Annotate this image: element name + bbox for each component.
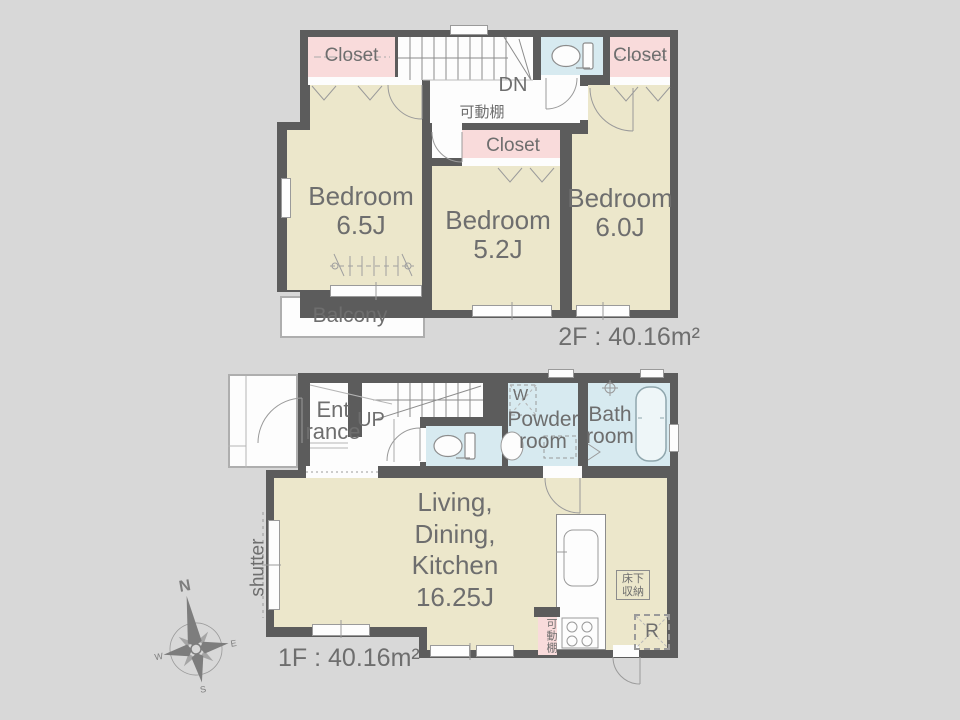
bedroom1-label: Bedroom 6.5J bbox=[296, 182, 426, 240]
washer-label: W bbox=[513, 387, 535, 405]
bath-line2: room bbox=[578, 426, 642, 448]
floor-storage-label: 床下 収納 bbox=[616, 573, 650, 598]
toilet-door-gap bbox=[418, 428, 426, 462]
compass-minor-points bbox=[179, 632, 214, 667]
compass-s-label: S bbox=[199, 684, 207, 695]
bedroom1-door-gap bbox=[390, 77, 422, 85]
closet-mid-door bbox=[462, 158, 560, 166]
shelf-2f-label: 可動棚 bbox=[427, 105, 537, 122]
window bbox=[281, 178, 291, 218]
floor1-area-label: 1F : 40.16m² bbox=[278, 644, 488, 672]
kitchen-counter bbox=[556, 514, 606, 650]
bath-room-label: Bath room bbox=[578, 404, 642, 448]
toilet-room-1f bbox=[426, 426, 502, 466]
bedroom2-name: Bedroom bbox=[432, 206, 564, 235]
storage-line2: 収納 bbox=[616, 586, 650, 599]
bedroom2-size: 5.2J bbox=[432, 235, 564, 264]
compass-n-label: N bbox=[178, 577, 192, 596]
stairs-up-label: UP bbox=[353, 409, 389, 431]
bedroom3-name: Bedroom bbox=[560, 184, 680, 213]
ldk-line1: Living, bbox=[380, 487, 530, 519]
ldk-line3: Kitchen bbox=[380, 550, 530, 582]
bedroom3-size: 6.0J bbox=[560, 213, 680, 242]
window bbox=[312, 624, 370, 636]
bedroom2-label: Bedroom 5.2J bbox=[432, 206, 564, 264]
bedroom1-name: Bedroom bbox=[296, 182, 426, 211]
bedroom2-door-swing bbox=[432, 130, 462, 158]
closet-left-label: Closet bbox=[308, 45, 395, 66]
shelf-1f-label: 可動棚 bbox=[539, 618, 556, 654]
window bbox=[669, 424, 679, 452]
window bbox=[472, 305, 552, 317]
compass-w-label: W bbox=[154, 651, 165, 662]
storage-line1: 床下 bbox=[616, 573, 650, 586]
floorplan-canvas: N E S W Closet Closet Closet DN 可動棚 Bedr… bbox=[0, 0, 960, 720]
bedroom3-label: Bedroom 6.0J bbox=[560, 184, 680, 242]
compass-e-label: E bbox=[230, 638, 238, 649]
entrance-ldk-opening bbox=[306, 466, 378, 478]
window bbox=[450, 25, 488, 35]
toilet-room-2f bbox=[541, 37, 603, 75]
ldk-line2: Dining, bbox=[380, 519, 530, 551]
closet-right-door bbox=[610, 77, 670, 85]
powder-room-label: Powder room bbox=[502, 409, 584, 453]
balcony-label: Balcony bbox=[284, 304, 416, 328]
window bbox=[576, 305, 630, 317]
floor2-area-label: 2F : 40.16m² bbox=[495, 323, 700, 351]
compass-rose: N E S W bbox=[142, 571, 244, 702]
closet-right-label: Closet bbox=[608, 45, 672, 66]
window bbox=[640, 369, 664, 378]
ldk-label: Living, Dining, Kitchen 16.25J bbox=[380, 487, 530, 614]
closet-mid-label: Closet bbox=[466, 135, 560, 156]
window bbox=[548, 369, 574, 378]
bedroom-6-0-upper bbox=[588, 85, 670, 134]
window bbox=[330, 285, 422, 297]
powder-line1: Powder bbox=[502, 409, 584, 431]
stairs-dn-label: DN bbox=[488, 74, 538, 96]
powder-line2: room bbox=[502, 431, 584, 453]
bedroom2-door-gap bbox=[432, 123, 462, 130]
compass-main-points bbox=[154, 590, 234, 688]
bedroom1-size: 6.5J bbox=[296, 211, 426, 240]
fridge-label: R bbox=[634, 621, 670, 642]
bath-line1: Bath bbox=[578, 404, 642, 426]
shelf-wall-stub bbox=[534, 607, 560, 617]
bedroom3-door-gap bbox=[580, 86, 588, 120]
ldk-size: 16.25J bbox=[380, 582, 530, 614]
shutter-label: shutter bbox=[247, 520, 268, 616]
closet-left-door bbox=[308, 77, 395, 85]
window-shutter bbox=[268, 520, 280, 610]
entrance-porch bbox=[228, 374, 298, 468]
ldk-door-gap bbox=[543, 466, 582, 478]
